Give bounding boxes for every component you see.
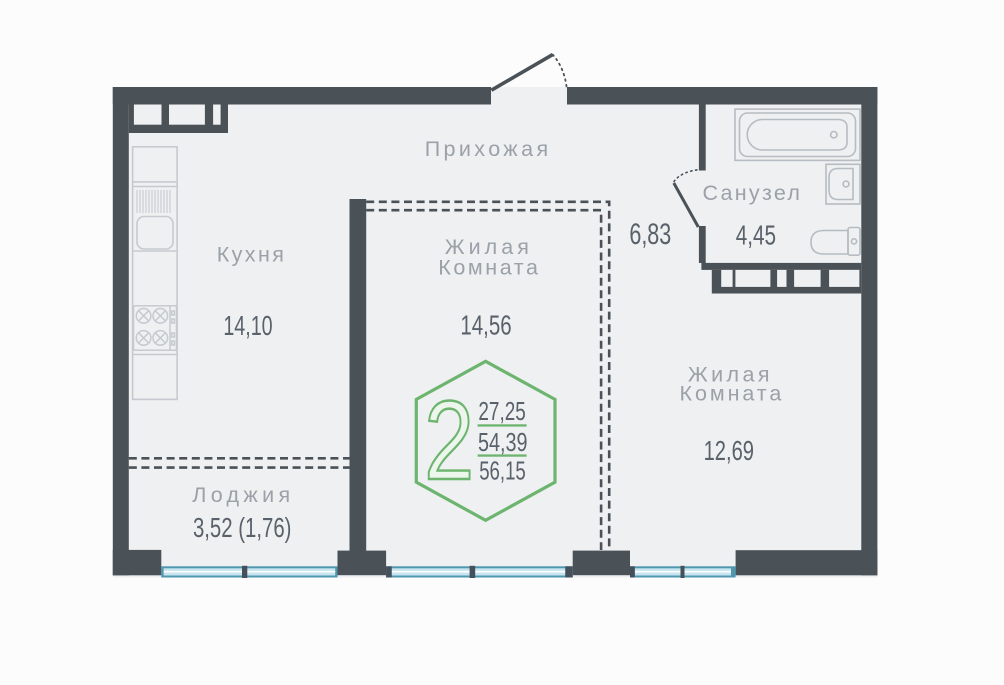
svg-text:Кухня: Кухня [217, 243, 284, 267]
svg-text:14,56: 14,56 [460, 310, 511, 341]
svg-text:4,45: 4,45 [736, 220, 776, 251]
svg-text:6,83: 6,83 [629, 218, 671, 251]
svg-text:Комната: Комната [438, 256, 538, 280]
svg-text:12,69: 12,69 [704, 435, 754, 466]
svg-text:54,39: 54,39 [478, 429, 528, 457]
svg-text:2: 2 [424, 378, 474, 503]
svg-text:3,52 (1,76): 3,52 (1,76) [193, 512, 292, 543]
svg-text:27,25: 27,25 [478, 398, 525, 426]
svg-text:Комната: Комната [680, 382, 782, 406]
svg-text:14,10: 14,10 [223, 310, 272, 341]
svg-text:56,15: 56,15 [479, 457, 526, 485]
